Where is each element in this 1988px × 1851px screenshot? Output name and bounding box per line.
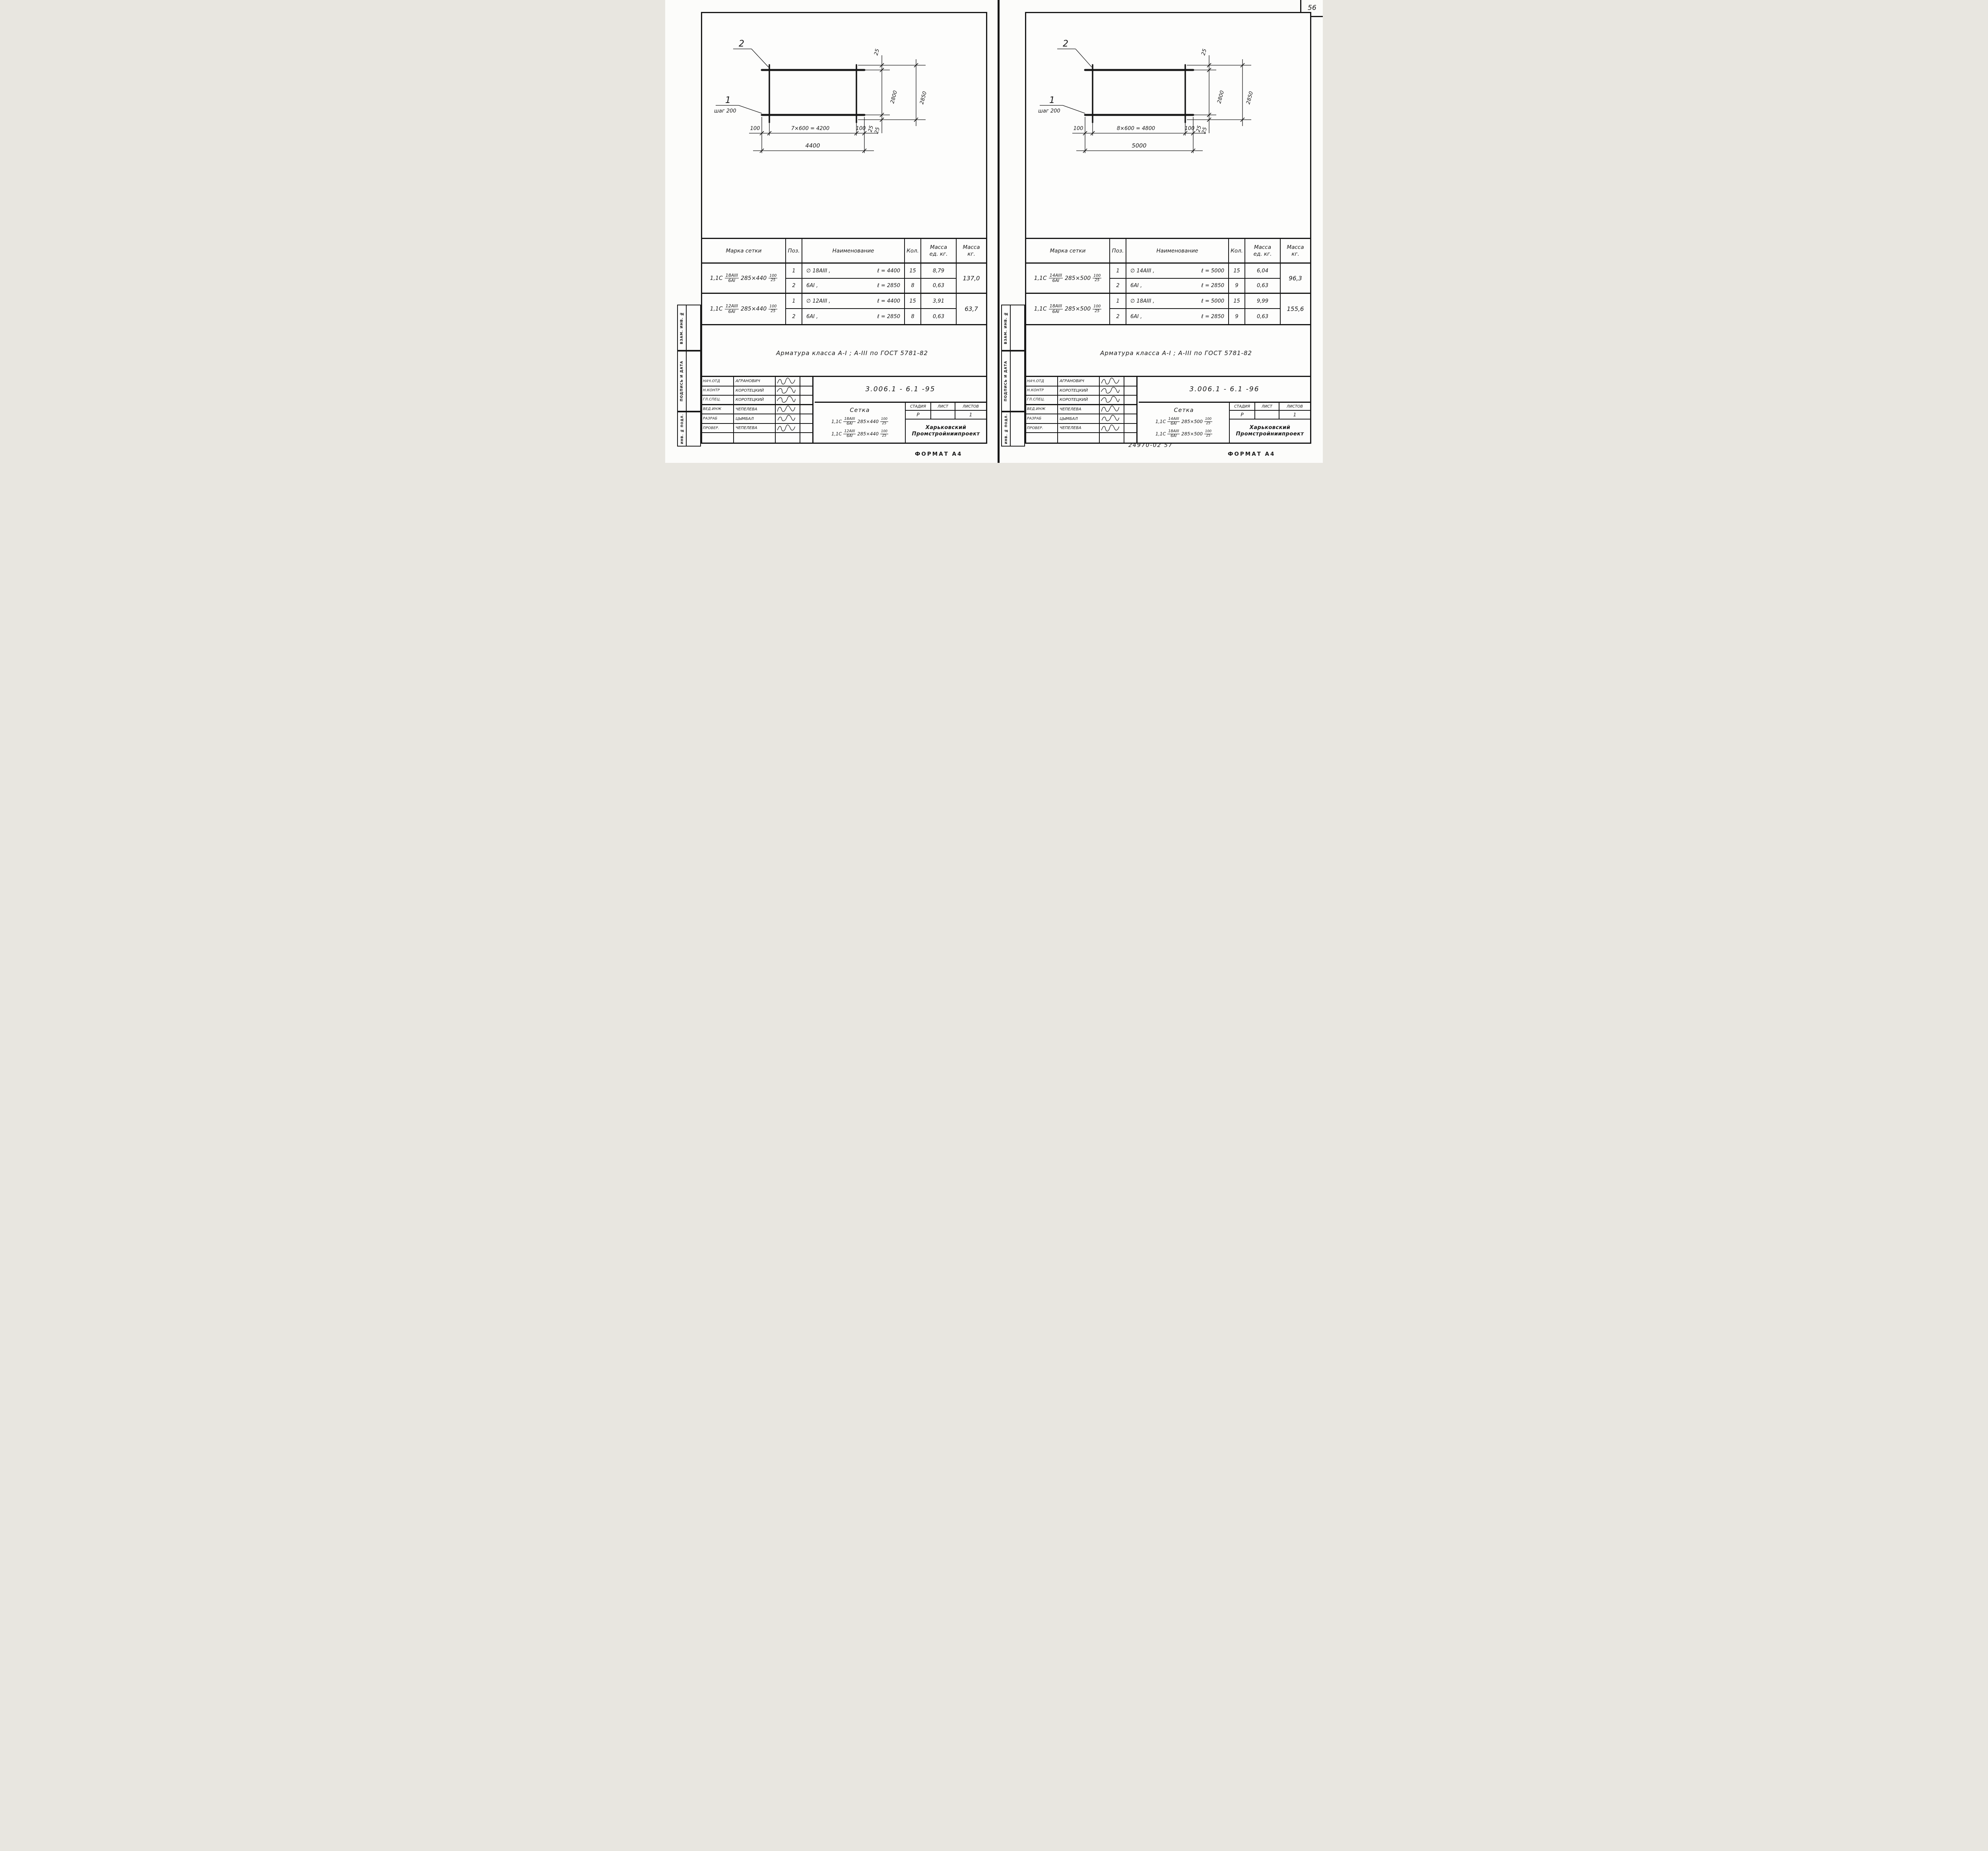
mesh-drawing-left: 2 1 шаг 200 25 2800 2850 25 xyxy=(702,13,986,236)
unit-mass-cell: 0,63 xyxy=(921,309,957,324)
name-cell: 6АI ,ℓ = 2850 xyxy=(802,309,905,324)
sheets-value: 1 xyxy=(1279,411,1310,420)
leader-line-2 xyxy=(1076,49,1092,67)
unit-mass-cell: 8,79 xyxy=(921,264,957,279)
role-label: ПРОВЕР. xyxy=(1026,424,1058,433)
role-label: ГЛ.СПЕЦ. xyxy=(702,396,734,405)
pos-cell: 1 xyxy=(1110,264,1126,279)
sheet-value xyxy=(931,411,955,420)
person-name: КОРОТЕЦКИЙ xyxy=(734,396,776,405)
role-label: РАЗРАБ xyxy=(702,414,734,424)
signature-icon xyxy=(1100,424,1120,432)
signature-cell xyxy=(776,424,800,433)
total-mass-cell: 63,7 xyxy=(957,294,986,324)
col-header-mass: Массакг. xyxy=(957,239,986,264)
stage-value: Р xyxy=(906,411,931,420)
signature-icon xyxy=(776,377,796,385)
qty-cell: 15 xyxy=(905,264,921,279)
col-header-pos: Поз. xyxy=(1110,239,1126,264)
qty-cell: 15 xyxy=(1229,264,1245,279)
callout-2: 2 xyxy=(739,39,744,49)
personnel-table: НАЧ.ОТД АГРАНОВИЧ Н.КОНТР КОРОТЕЦКИЙ ГЛ.… xyxy=(1026,377,1138,443)
scanned-drawing-page: 56 2 1 шаг 200 xyxy=(665,0,1323,463)
person-name: ЦЫМБАЛ xyxy=(1058,414,1100,424)
qty-cell: 8 xyxy=(905,279,921,294)
sheet-value xyxy=(1255,411,1279,420)
col-header-mass-unit: Массаед. кг. xyxy=(1245,239,1281,264)
col-header-qty: Кол. xyxy=(1229,239,1245,264)
signature-cell xyxy=(776,387,800,396)
pos-cell: 1 xyxy=(786,264,802,279)
sheets-label: ЛИСТОВ xyxy=(1279,403,1310,411)
signature-cell xyxy=(776,414,800,424)
person-name: АГРАНОВИЧ xyxy=(734,377,776,387)
stage-value: Р xyxy=(1230,411,1255,420)
total-mass-cell: 155,6 xyxy=(1281,294,1310,324)
leader-line-1 xyxy=(739,105,762,113)
qty-cell: 9 xyxy=(1229,309,1245,324)
person-name: КОРОТЕЦКИЙ xyxy=(734,387,776,396)
signature-icon xyxy=(776,405,796,413)
signature-cell xyxy=(776,396,800,405)
name-cell: 6АI ,ℓ = 2850 xyxy=(1126,309,1229,324)
signature-icon xyxy=(1100,415,1120,423)
title-block-left: НАЧ.ОТД АГРАНОВИЧ Н.КОНТР КОРОТЕЦКИЙ ГЛ.… xyxy=(702,376,986,443)
dim-total: 4400 xyxy=(806,143,820,149)
signature-icon xyxy=(776,415,796,423)
role-label: Н.КОНТР xyxy=(702,387,734,396)
personnel-table: НАЧ.ОТД АГРАНОВИЧ Н.КОНТР КОРОТЕЦКИЙ ГЛ.… xyxy=(702,377,813,443)
name-cell: 6АI ,ℓ = 2850 xyxy=(802,279,905,294)
spec-table-left: Марка сетки Поз. Наименование Кол. Масса… xyxy=(702,238,986,325)
sheets-value: 1 xyxy=(955,411,986,420)
signature-icon xyxy=(1100,387,1120,394)
dim-total: 5000 xyxy=(1132,143,1147,149)
qty-cell: 15 xyxy=(1229,294,1245,309)
mesh-mark: 1,1С 18АIII6АI 285×440 10025 xyxy=(702,264,786,294)
dim-2850: 2850 xyxy=(1245,91,1254,105)
role-label: ПРОВЕР. xyxy=(702,424,734,433)
person-name: ЧЕПЕЛЕВА xyxy=(734,405,776,415)
sheet-right: 2 1 шаг 200 25 2800 2850 25 xyxy=(1025,12,1311,444)
rebar-class-note: Арматура класса А-I ; А-III по ГОСТ 5781… xyxy=(1054,350,1298,357)
role-label: НАЧ.ОТД xyxy=(1026,377,1058,387)
document-number: 3.006.1 - 6.1 -96 xyxy=(1139,377,1310,403)
signature-icon xyxy=(776,387,796,394)
signature-cell xyxy=(1100,405,1124,415)
person-name: ЧЕПЕЛЕВА xyxy=(1058,405,1100,415)
col-header-mass: Массакг. xyxy=(1281,239,1310,264)
role-label: РАЗРАБ xyxy=(1026,414,1058,424)
sidebar-inv-right: ИНВ. № ПОДЛ. xyxy=(1001,412,1025,447)
person-name: ЦЫМБАЛ xyxy=(734,414,776,424)
format-label-left: ФОРМАТ А4 xyxy=(915,451,962,457)
stage-block: СТАДИЯ ЛИСТ ЛИСТОВ Р 1 ХарьковскийПромст… xyxy=(906,403,986,443)
rebar-class-note: Арматура класса А-I ; А-III по ГОСТ 5781… xyxy=(730,350,974,357)
mesh-mark: 1,1С 14АIII6АI 285×500 10025 xyxy=(1026,264,1110,294)
spec-table-right: Марка сетки Поз. Наименование Кол. Масса… xyxy=(1026,238,1310,325)
signature-cell xyxy=(1100,396,1124,405)
dim-2800: 2800 xyxy=(1216,90,1225,104)
signature-icon xyxy=(1100,396,1120,404)
step-note: шаг 200 xyxy=(714,108,736,114)
signature-cell xyxy=(1100,424,1124,433)
role-label: ГЛ.СПЕЦ. xyxy=(1026,396,1058,405)
dim-2800: 2800 xyxy=(889,90,899,104)
qty-cell: 8 xyxy=(905,309,921,324)
sheet-label: ЛИСТ xyxy=(931,403,955,411)
sheet-divider-line xyxy=(998,0,1000,463)
signature-cell xyxy=(776,377,800,387)
signature-cell xyxy=(1100,414,1124,424)
unit-mass-cell: 0,63 xyxy=(921,279,957,294)
total-mass-cell: 137,0 xyxy=(957,264,986,294)
step-note: шаг 200 xyxy=(1038,108,1060,114)
mesh-drawing-right: 2 1 шаг 200 25 2800 2850 25 xyxy=(1026,13,1310,236)
stage-label: СТАДИЯ xyxy=(906,403,931,411)
pos-cell: 2 xyxy=(1110,309,1126,324)
signature-cell xyxy=(1100,387,1124,396)
name-cell: 6АI ,ℓ = 2850 xyxy=(1126,279,1229,294)
signature-icon xyxy=(1100,377,1120,385)
role-label: Н.КОНТР xyxy=(1026,387,1058,396)
archive-code: 24970-02 57 xyxy=(1128,442,1173,449)
name-cell: ∅ 18АIII ,ℓ = 4400 xyxy=(802,264,905,279)
dim-100-right: 100 xyxy=(1185,126,1195,132)
page-number: 56 xyxy=(1308,4,1316,12)
signature-cell xyxy=(776,405,800,415)
drawing-title-cell: Сетка 1,1С 18АIII6АI 285×440 10025 1,1С … xyxy=(815,403,906,443)
leader-line-1 xyxy=(1063,105,1085,113)
dim-spacing: 7×600 = 4200 xyxy=(791,126,829,132)
person-name: ЧЕПЕЛЕВА xyxy=(1058,424,1100,433)
stamp-mark-1: 1,1С 18АIII6АI 285×440 10025 xyxy=(831,417,888,426)
dim-25-top: 25 xyxy=(873,48,881,56)
title-block-right: НАЧ.ОТД АГРАНОВИЧ Н.КОНТР КОРОТЕЦКИЙ ГЛ.… xyxy=(1026,376,1310,443)
unit-mass-cell: 6,04 xyxy=(1245,264,1281,279)
unit-mass-cell: 9,99 xyxy=(1245,294,1281,309)
callout-2: 2 xyxy=(1063,39,1068,49)
dim-100-left: 100 xyxy=(1074,126,1083,132)
qty-cell: 9 xyxy=(1229,279,1245,294)
signature-cell xyxy=(1100,377,1124,387)
name-cell: ∅ 12АIII ,ℓ = 4400 xyxy=(802,294,905,309)
total-mass-cell: 96,3 xyxy=(1281,264,1310,294)
person-name: КОРОТЕЦКИЙ xyxy=(1058,387,1100,396)
qty-cell: 15 xyxy=(905,294,921,309)
pos-cell: 2 xyxy=(786,309,802,324)
name-cell: ∅ 18АIII ,ℓ = 5000 xyxy=(1126,294,1229,309)
mesh-mark: 1,1С 18АIII6АI 285×500 10025 xyxy=(1026,294,1110,324)
stamp-mark-2: 1,1С 18АIII6АI 285×500 10025 xyxy=(1155,429,1212,438)
sheet-label: ЛИСТ xyxy=(1255,403,1279,411)
pos-cell: 1 xyxy=(786,294,802,309)
dim-spacing: 8×600 = 4800 xyxy=(1117,126,1155,132)
name-cell: ∅ 14АIII ,ℓ = 5000 xyxy=(1126,264,1229,279)
unit-mass-cell: 0,63 xyxy=(1245,279,1281,294)
pos-cell: 2 xyxy=(786,279,802,294)
dim-100-left: 100 xyxy=(750,126,760,132)
signature-icon xyxy=(776,424,796,432)
stamp-mark-1: 1,1С 14АIII6АI 285×500 10025 xyxy=(1155,417,1212,426)
pos-cell: 1 xyxy=(1110,294,1126,309)
col-header-pos: Поз. xyxy=(786,239,802,264)
sidebar-vzam-right: ВЗАМ. ИНВ. № xyxy=(1001,305,1025,351)
col-header-mark: Марка сетки xyxy=(702,239,786,264)
unit-mass-cell: 3,91 xyxy=(921,294,957,309)
callout-1: 1 xyxy=(1049,95,1055,105)
col-header-mass-unit: Массаед. кг. xyxy=(921,239,957,264)
sidebar-vzam-left: ВЗАМ. ИНВ. № xyxy=(677,305,701,351)
stamp-mark-2: 1,1С 12АIII6АI 285×440 10025 xyxy=(831,429,888,438)
signature-icon xyxy=(776,396,796,404)
dim-25-top: 25 xyxy=(1200,48,1208,56)
document-number: 3.006.1 - 6.1 -95 xyxy=(815,377,986,403)
format-label-right: ФОРМАТ А4 xyxy=(1228,451,1275,457)
stage-block: СТАДИЯ ЛИСТ ЛИСТОВ Р 1 ХарьковскийПромст… xyxy=(1230,403,1310,443)
signature-icon xyxy=(1100,405,1120,413)
dim-100-right: 100 xyxy=(856,126,866,132)
person-name: ЧЕПЕЛЕВА xyxy=(734,424,776,433)
col-header-name: Наименование xyxy=(802,239,905,264)
callout-1: 1 xyxy=(725,95,731,105)
pos-cell: 2 xyxy=(1110,279,1126,294)
drawing-title: Сетка xyxy=(850,407,870,414)
person-name: КОРОТЕЦКИЙ xyxy=(1058,396,1100,405)
sheet-left: 2 1 шаг 200 25 2800 2850 25 xyxy=(701,12,987,444)
drawing-title-cell: Сетка 1,1С 14АIII6АI 285×500 10025 1,1С … xyxy=(1139,403,1230,443)
sheets-label: ЛИСТОВ xyxy=(955,403,986,411)
role-label: ВЕД.ИНЖ xyxy=(1026,405,1058,415)
col-header-name: Наименование xyxy=(1126,239,1229,264)
leader-line-2 xyxy=(751,49,769,67)
unit-mass-cell: 0,63 xyxy=(1245,309,1281,324)
organization-name: ХарьковскийПромстройниипроект xyxy=(906,420,986,443)
stage-label: СТАДИЯ xyxy=(1230,403,1255,411)
mesh-mark: 1,1С 12АIII6АI 285×440 10025 xyxy=(702,294,786,324)
person-name: АГРАНОВИЧ xyxy=(1058,377,1100,387)
drawing-title: Сетка xyxy=(1174,407,1194,414)
sidebar-podpis-right: ПОДПИСЬ И ДАТА xyxy=(1001,351,1025,412)
sidebar-inv-left: ИНВ. № ПОДЛ. xyxy=(677,412,701,447)
col-header-mark: Марка сетки xyxy=(1026,239,1110,264)
role-label: НАЧ.ОТД xyxy=(702,377,734,387)
col-header-qty: Кол. xyxy=(905,239,921,264)
dim-2850: 2850 xyxy=(919,91,928,105)
role-label: ВЕД.ИНЖ xyxy=(702,405,734,415)
sidebar-podpis-left: ПОДПИСЬ И ДАТА xyxy=(677,351,701,412)
organization-name: ХарьковскийПромстройниипроект xyxy=(1230,420,1310,443)
